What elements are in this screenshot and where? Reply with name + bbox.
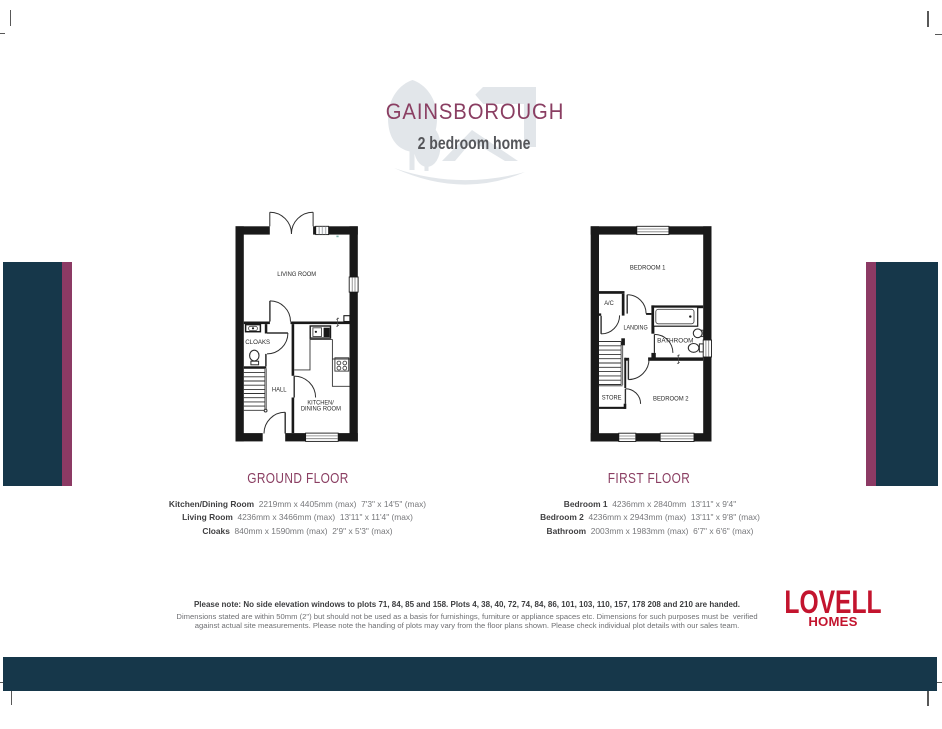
svg-text:HALL: HALL [272,387,287,393]
svg-text:A/C: A/C [604,301,614,307]
svg-text:LIVING ROOM: LIVING ROOM [277,272,316,278]
svg-text:BEDROOM 1: BEDROOM 1 [630,266,666,272]
svg-text:CLOAKS: CLOAKS [245,340,270,346]
svg-text:STORE: STORE [602,395,622,401]
svg-text:KITCHEN/: KITCHEN/ [307,401,334,407]
svg-text:BEDROOM 2: BEDROOM 2 [653,397,689,403]
svg-text:DINING ROOM: DINING ROOM [301,407,341,413]
svg-text:LANDING: LANDING [624,326,649,332]
svg-text:BATHROOM: BATHROOM [657,339,693,345]
